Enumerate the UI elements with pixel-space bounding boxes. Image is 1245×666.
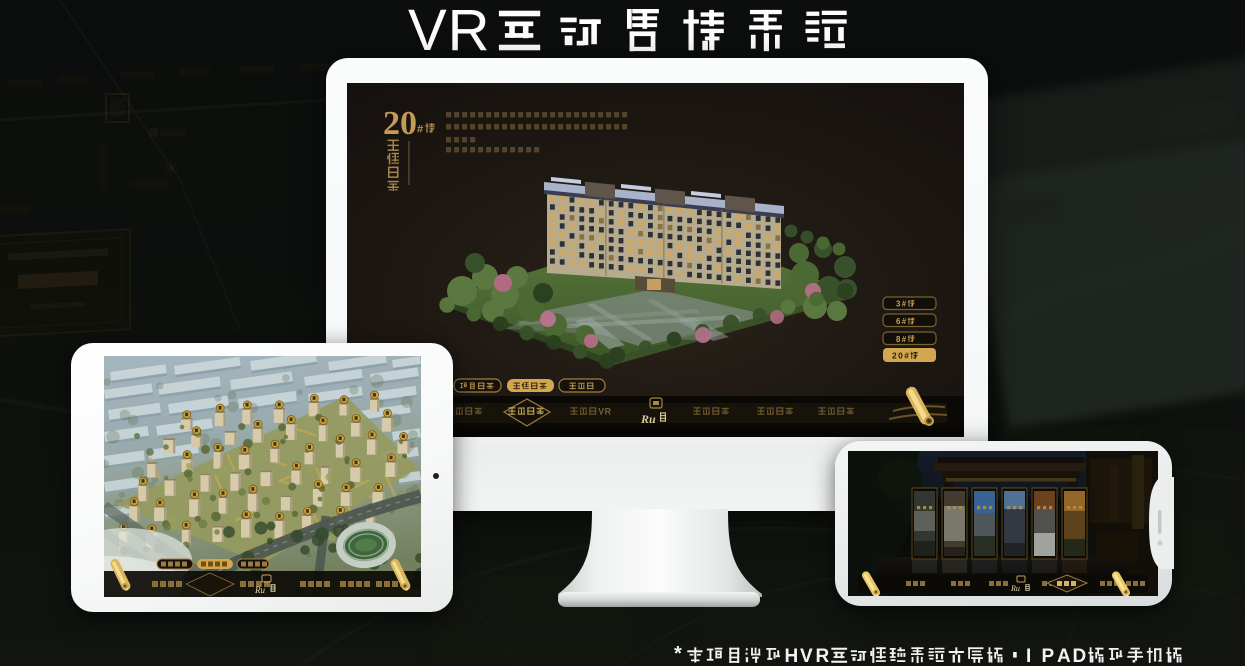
svg-text:20: 20 — [383, 105, 417, 142]
svg-text:Ru: Ru — [1010, 584, 1020, 593]
svg-text:2: 2 — [892, 351, 897, 361]
svg-text:P: P — [1042, 646, 1055, 666]
svg-text:VR: VR — [408, 0, 491, 60]
svg-text:Ru: Ru — [254, 585, 265, 595]
svg-text:8: 8 — [896, 335, 901, 344]
svg-text:3: 3 — [896, 300, 901, 309]
svg-text:#: # — [417, 124, 423, 136]
svg-text:I: I — [1026, 646, 1031, 666]
svg-text:*: * — [674, 643, 682, 665]
svg-text:#: # — [902, 317, 907, 326]
svg-text:H: H — [785, 646, 799, 666]
svg-text:#: # — [902, 300, 907, 309]
svg-text:#: # — [904, 351, 909, 361]
svg-text:Ru: Ru — [640, 412, 656, 426]
svg-text:V: V — [800, 646, 813, 666]
svg-text:R: R — [605, 407, 612, 417]
svg-text:R: R — [816, 646, 830, 666]
svg-text:#: # — [902, 335, 907, 344]
svg-text:6: 6 — [896, 317, 901, 326]
svg-text:D: D — [1073, 646, 1087, 666]
svg-text:V: V — [598, 407, 604, 417]
svg-text:A: A — [1057, 646, 1071, 666]
svg-text:0: 0 — [898, 351, 903, 361]
